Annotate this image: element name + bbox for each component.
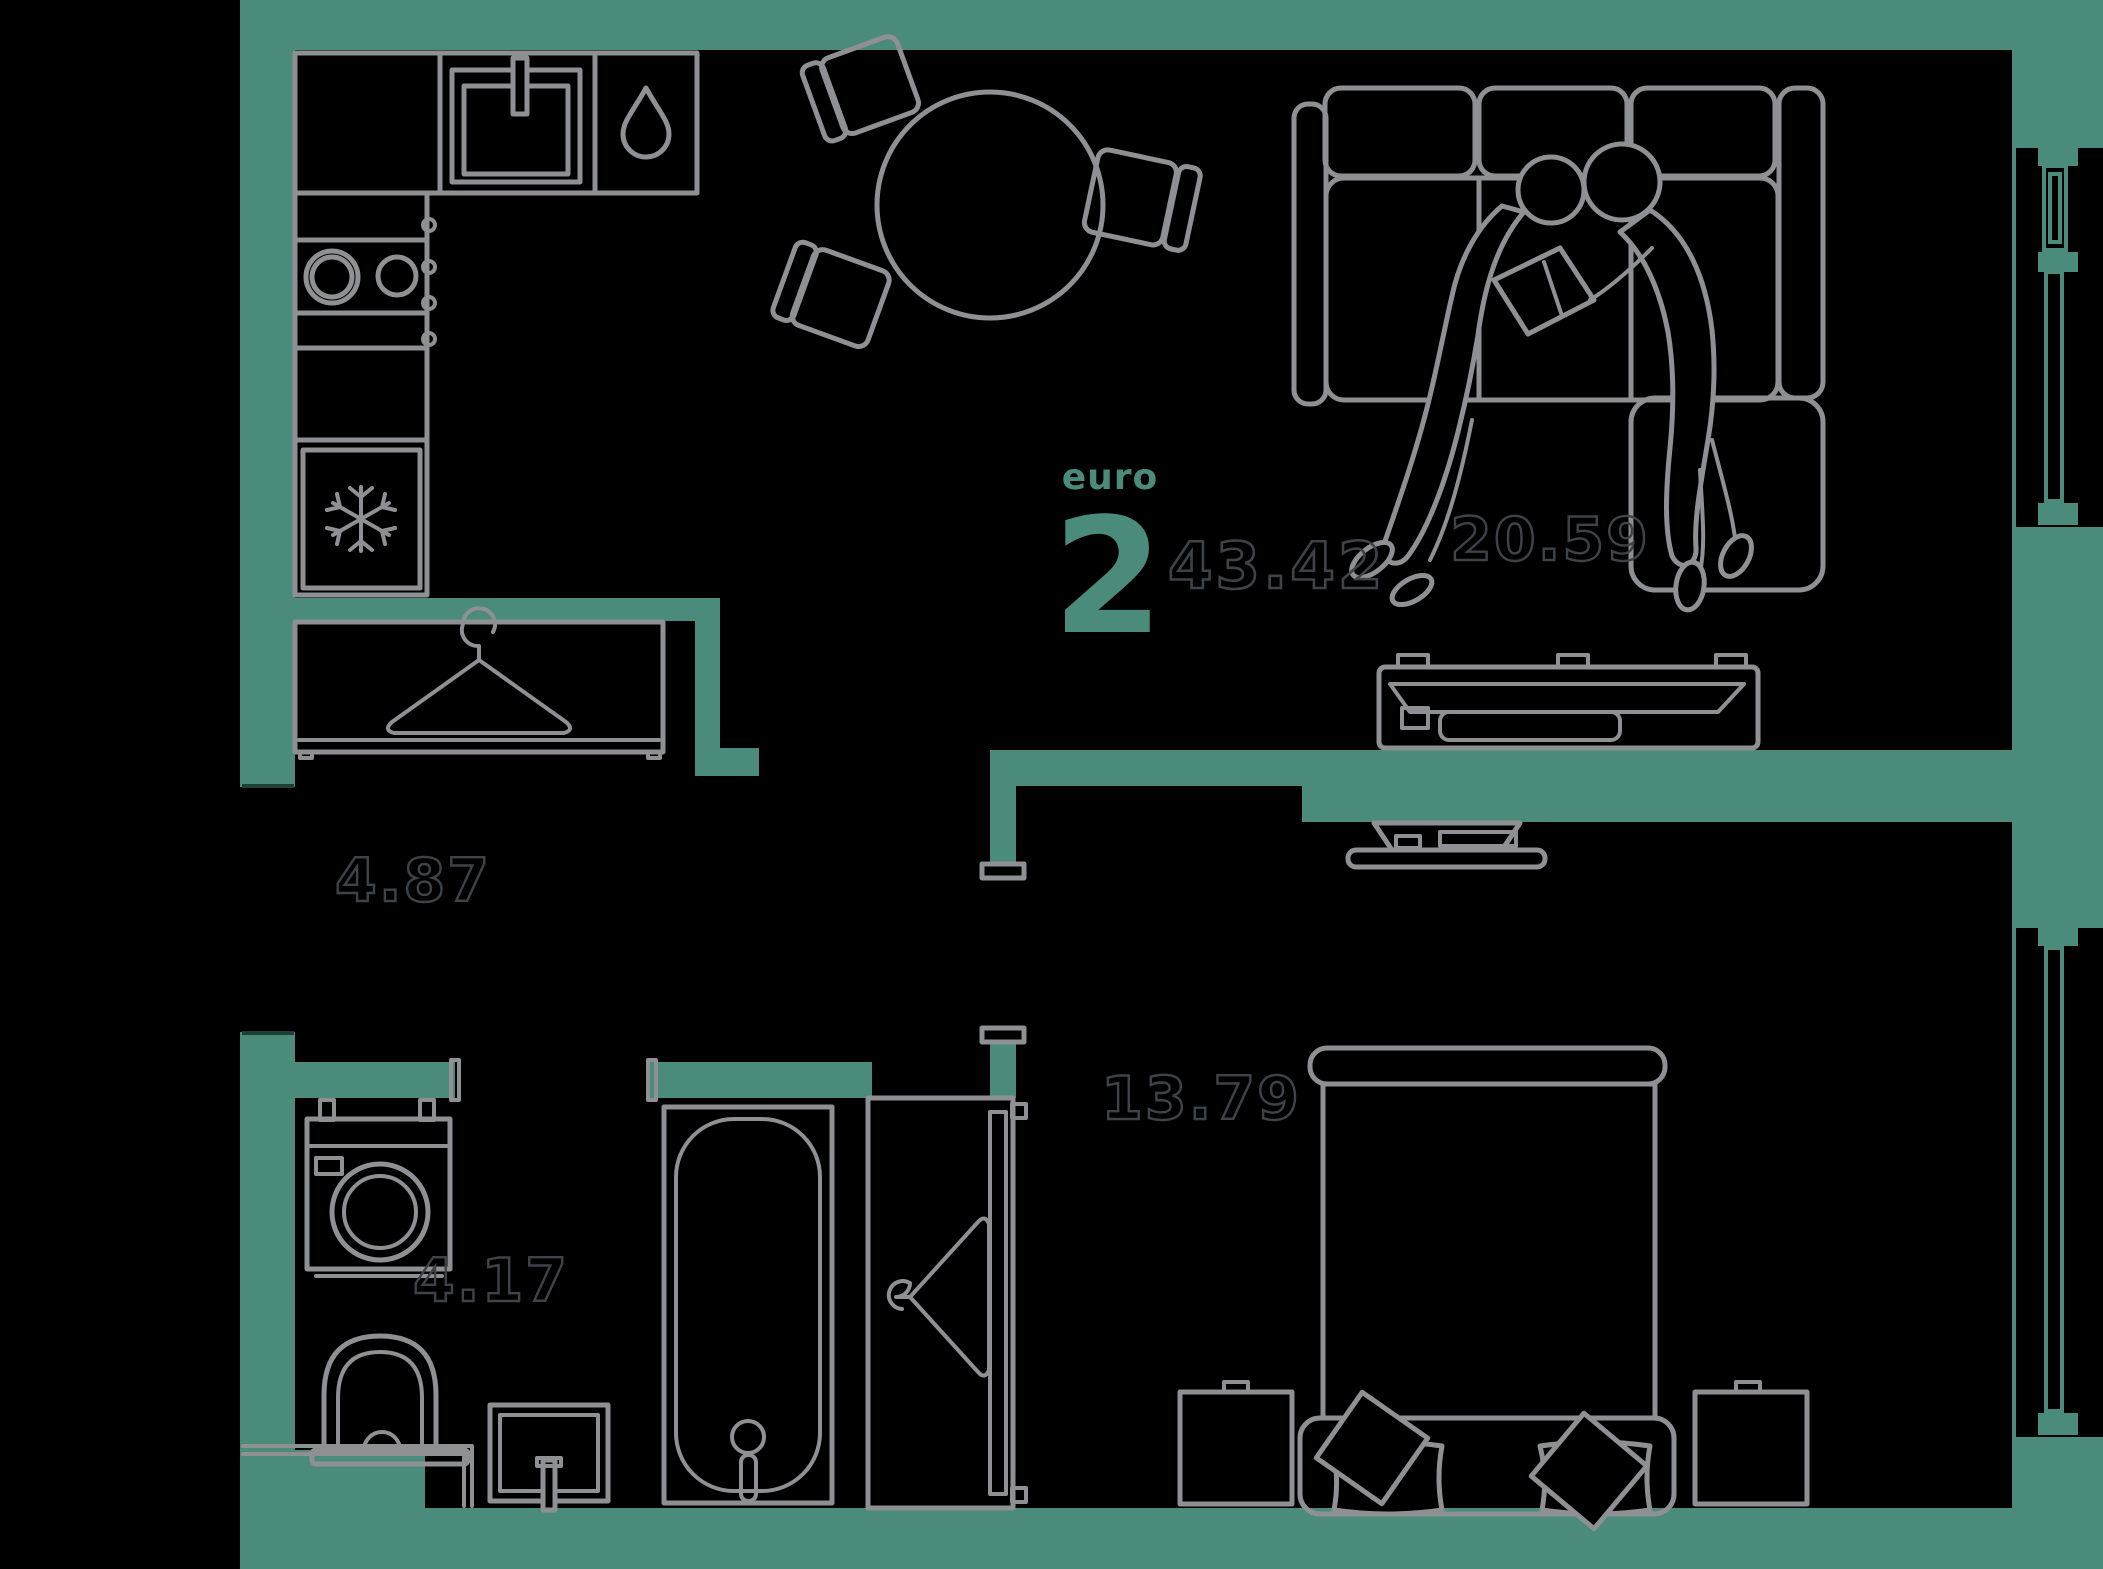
credenza-drawer: [1440, 712, 1620, 740]
wall-bedroom-door-stub-bottom: [990, 1036, 1016, 1098]
window-inner-face: [2012, 928, 2016, 1437]
bath-sink: [490, 1405, 608, 1510]
sofa-armrest-right: [1779, 88, 1823, 398]
washer-door-inner: [344, 1176, 416, 1248]
nightstand-body: [1695, 1392, 1807, 1504]
wall-right-middle: [2012, 527, 2103, 928]
bed: [1300, 1048, 1674, 1529]
kitchen-sink: [452, 58, 580, 182]
person-head: [1584, 144, 1660, 220]
dining-chair: [800, 34, 921, 143]
wall-toilet-step: [240, 1450, 425, 1508]
window-sash: [2044, 166, 2066, 250]
window-frame-block: [2038, 503, 2078, 525]
hanger-icon: [889, 1218, 989, 1375]
tub-outer: [664, 1107, 832, 1503]
credenza-foot: [1558, 655, 1588, 667]
wall-hall-vertical: [695, 598, 720, 750]
window-frame-block: [2038, 1413, 2078, 1435]
window-inner-face: [2012, 148, 2016, 527]
bed-footboard: [1310, 1048, 1665, 1084]
wall-top: [240, 0, 2065, 50]
nightstand-body: [1180, 1392, 1292, 1504]
wardrobe-foot: [300, 752, 312, 758]
hanger-icon: [388, 608, 570, 733]
window-sash-inner: [2050, 174, 2060, 242]
tv: [1348, 823, 1545, 867]
unit-total-area: 43.42: [1168, 530, 1385, 604]
window-sash: [2046, 272, 2062, 501]
unit-label: euro 2 43.42: [1052, 457, 1385, 670]
fridge: [303, 450, 420, 588]
window-frame-block: [2038, 252, 2078, 272]
credenza-body: [1379, 667, 1758, 748]
wall-top-right-corner: [2012, 0, 2103, 148]
nightstand-left: [1180, 1382, 1292, 1504]
room-area-living: 20.59: [1450, 505, 1650, 575]
window-sash: [2046, 948, 2062, 1411]
wall-hall-foot: [695, 748, 759, 776]
wall-bottom: [240, 1508, 2103, 1569]
stove: [306, 251, 416, 303]
room-area-hallway: 4.87: [335, 846, 491, 916]
bed-mattress: [1323, 1084, 1655, 1418]
credenza-shelf: [1390, 684, 1744, 712]
person-foot: [1673, 560, 1707, 611]
toilet-bowl-inner: [338, 1352, 422, 1450]
wall-hall-top: [290, 598, 720, 621]
wall-bedroom-door-stub-top: [990, 750, 1016, 872]
washer-panel: [316, 1158, 342, 1174]
credenza-foot: [1398, 655, 1428, 667]
burner-small: [378, 257, 416, 295]
tub-inner: [676, 1119, 820, 1491]
floor-plan-svg: euro 2 43.42 20.59 4.87 4.17 13.79: [0, 0, 2103, 1569]
tv-screen-bar: [1348, 850, 1545, 867]
window-frame-block: [2038, 148, 2078, 166]
water-drop-icon: [623, 88, 669, 157]
sofa-armrest-left: [1294, 104, 1326, 404]
wall-bathroom-right: [650, 1062, 872, 1098]
window-upper: [2012, 148, 2078, 527]
burner-large-inner: [312, 257, 352, 297]
wardrobe-foot: [648, 752, 660, 758]
person-foot: [1387, 569, 1436, 610]
wardrobe: [295, 608, 663, 758]
sink-faucet: [513, 58, 527, 114]
dining-chair: [771, 240, 892, 349]
nightstand-knob: [1736, 1382, 1760, 1392]
tv-credenza: [1379, 655, 1758, 748]
kitchen: [295, 53, 697, 595]
closet: [868, 1098, 1026, 1508]
door-frame: [982, 864, 1024, 878]
wall-bathroom-left: [287, 1062, 455, 1098]
unit-rooms-count: 2: [1052, 483, 1163, 670]
entrance-opening: [242, 786, 294, 1033]
dining-area: [771, 34, 1202, 350]
nightstand-right: [1695, 1382, 1807, 1504]
window-lower: [2012, 928, 2078, 1437]
window-frame-block: [2038, 928, 2078, 946]
wall-divider-thin: [990, 750, 1302, 786]
bedroom-furniture: [982, 864, 1807, 1529]
credenza-foot: [1716, 655, 1746, 667]
door-frame: [982, 1028, 1024, 1042]
tub-drain: [732, 1421, 764, 1453]
room-area-bathroom: 4.17: [413, 1246, 569, 1316]
wall-left-upper: [240, 0, 295, 787]
closet-door-panel: [990, 1112, 1006, 1494]
room-area-bedroom: 13.79: [1101, 1064, 1301, 1134]
person-head: [1518, 157, 1584, 223]
sofa-back-cushion: [1325, 88, 1475, 176]
person-foot: [1714, 530, 1758, 581]
wall-divider-thick: [1302, 750, 2012, 822]
snowflake-icon: [327, 487, 395, 551]
tv-foot: [1396, 836, 1420, 848]
nightstand-knob: [1224, 1382, 1248, 1392]
tub-tap: [741, 1455, 756, 1501]
bathtub: [664, 1107, 832, 1503]
dining-table: [877, 92, 1103, 318]
floor-plan: euro 2 43.42 20.59 4.87 4.17 13.79: [0, 0, 2103, 1569]
